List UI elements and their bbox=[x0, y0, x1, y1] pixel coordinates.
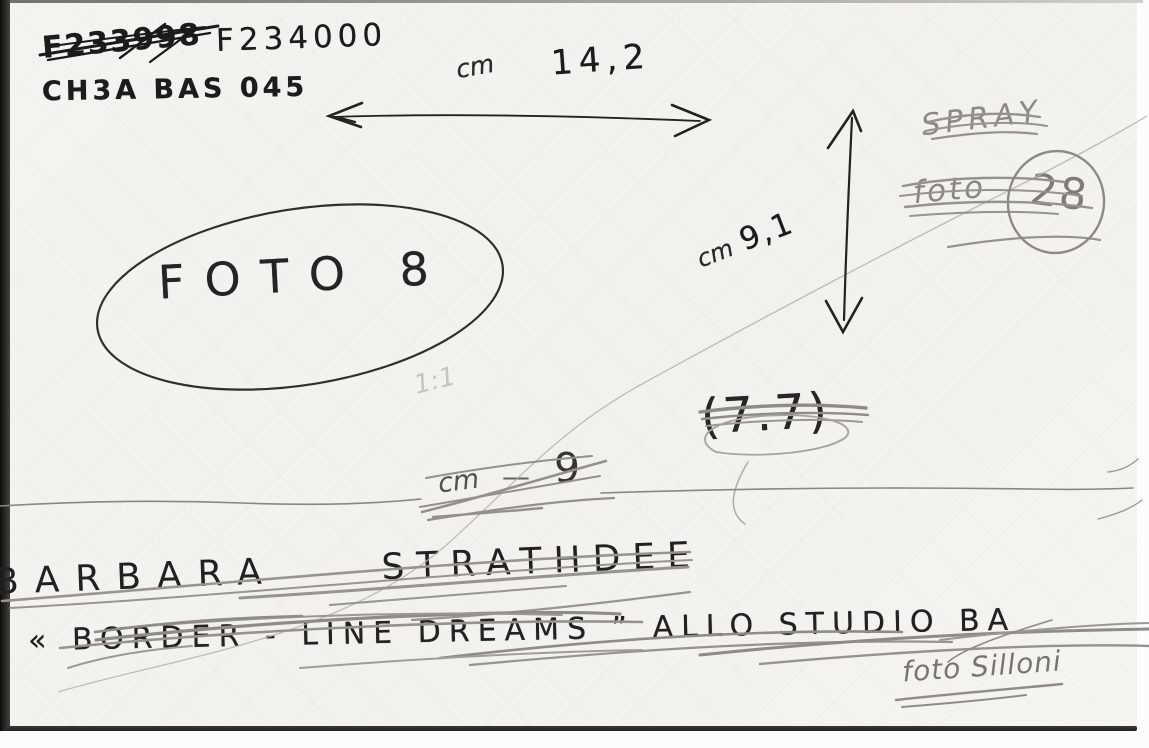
scanned-record-card: F233998 F234000 CH3A BAS 045 cm 14,2 FOT… bbox=[0, 0, 1149, 748]
ratio-note-crossed-out: (7.7) bbox=[700, 383, 832, 446]
crossed-out-dimension: cm — 9 bbox=[438, 450, 628, 520]
foto-note-crossed-out: foto bbox=[912, 169, 988, 211]
width-value-label: 14,2 bbox=[550, 37, 652, 84]
scan-edge-bottom bbox=[6, 726, 1137, 731]
crossed-dimension-dash: — bbox=[502, 460, 530, 493]
circled-print-number: 28 bbox=[1027, 165, 1091, 222]
scan-edge-top bbox=[0, 0, 1143, 3]
archive-code: CH3A BAS 045 bbox=[42, 72, 309, 108]
crossed-dimension-value: 9 bbox=[554, 444, 580, 492]
negative-number: F234000 bbox=[215, 17, 387, 59]
crossed-dimension-unit: cm bbox=[436, 464, 481, 500]
scan-edge-left bbox=[0, 0, 10, 731]
